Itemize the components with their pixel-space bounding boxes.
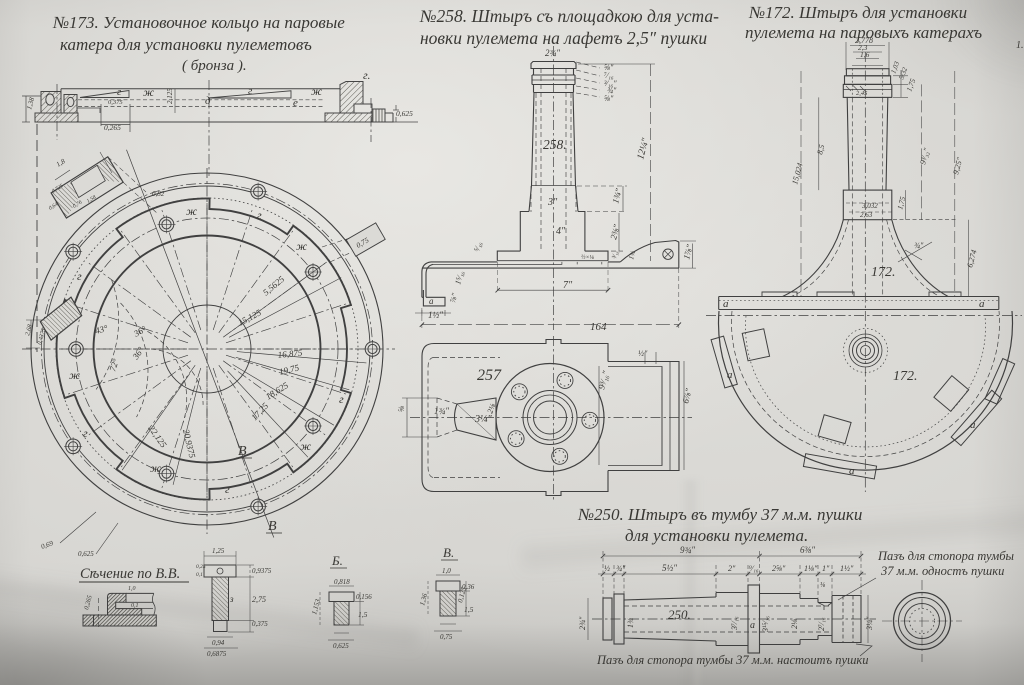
svg-text:ж: ж	[150, 461, 161, 475]
svg-text:½″: ½″	[638, 349, 648, 358]
svg-text:0,94: 0,94	[212, 639, 225, 647]
svg-text:1,5: 1,5	[358, 610, 368, 619]
svg-text:2,75: 2,75	[252, 595, 266, 604]
svg-text:г: г	[248, 85, 253, 97]
svg-text:( бронза ).: ( бронза ).	[182, 58, 247, 74]
svg-text:0,9375: 0,9375	[252, 567, 272, 575]
svg-text:0,4375: 0,4375	[36, 328, 47, 346]
svg-text:36°: 36°	[130, 345, 146, 362]
svg-text:43°: 43°	[94, 323, 109, 336]
svg-text:0,625: 0,625	[78, 550, 94, 558]
svg-text:⅝: ⅝	[397, 406, 406, 412]
svg-text:7″: 7″	[563, 280, 573, 291]
svg-text:№258. Штыръ съ площадкою для у: №258. Штыръ съ площадкою для уста-	[419, 6, 719, 26]
svg-text:1,153: 1,153	[310, 598, 322, 616]
svg-text:1.: 1.	[1016, 40, 1024, 51]
svg-text:6,274: 6,274	[965, 249, 978, 269]
svg-text:3⁷⁄₁₆: 3⁷⁄₁₆	[730, 616, 739, 631]
svg-text:№250. Штыръ въ тумбу 37 м.м. п: №250. Штыръ въ тумбу 37 м.м. пушки	[577, 505, 862, 524]
svg-text:2⅜″: 2⅜″	[608, 223, 622, 240]
svg-text:½: ½	[604, 564, 610, 573]
svg-text:ж: ж	[186, 204, 197, 218]
svg-text:16,875: 16,875	[277, 347, 303, 360]
svg-text:2,125: 2,125	[166, 88, 174, 104]
svg-text:½×⅛: ½×⅛	[581, 254, 595, 261]
svg-text:9,25″: 9,25″	[951, 156, 964, 176]
svg-text:а: а	[970, 419, 976, 431]
svg-text:ж: ж	[300, 439, 311, 453]
svg-text:а: а	[429, 296, 434, 306]
svg-text:¾″: ¾″	[914, 241, 924, 250]
svg-text:4″: 4″	[556, 226, 566, 237]
svg-text:5½″: 5½″	[662, 563, 677, 573]
svg-text:⅛: ⅛	[820, 581, 826, 589]
svg-text:ж: ж	[296, 239, 307, 253]
svg-text:1,8: 1,8	[55, 157, 67, 169]
svg-text:250.: 250.	[668, 607, 691, 622]
svg-text:для установки пулемета.: для установки пулемета.	[625, 526, 808, 545]
svg-text:1,0: 1,0	[442, 567, 451, 575]
svg-text:0,375: 0,375	[252, 620, 268, 628]
svg-text:1¾: 1¾	[626, 618, 635, 628]
svg-text:36°: 36°	[131, 324, 148, 340]
svg-text:0,25: 0,25	[196, 564, 206, 570]
svg-text:ж: ж	[69, 368, 80, 382]
svg-text:15,024: 15,024	[790, 162, 804, 186]
svg-text:е: е	[293, 97, 298, 109]
svg-text:172.: 172.	[871, 265, 896, 280]
svg-text:1¾″: 1¾″	[610, 187, 624, 204]
svg-text:0,75: 0,75	[440, 633, 453, 641]
svg-text:новки пулемета на лафетъ 2,5″: новки пулемета на лафетъ 2,5″ пушки	[420, 28, 707, 48]
svg-text:1,0: 1,0	[128, 586, 136, 592]
svg-text:В: В	[268, 519, 277, 534]
svg-text:172.: 172.	[893, 369, 918, 384]
svg-text:3¼″: 3¼″	[865, 616, 874, 631]
svg-text:257: 257	[477, 367, 502, 384]
svg-text:1⁵⁄₁₆: 1⁵⁄₁₆	[453, 270, 465, 286]
svg-text:2⅛: 2⅛	[790, 619, 799, 629]
svg-text:0,6875: 0,6875	[207, 650, 227, 658]
svg-text:2,63: 2,63	[860, 211, 873, 219]
svg-text:г.: г.	[363, 68, 371, 82]
svg-text:⅞″: ⅞″	[448, 292, 459, 304]
svg-text:г: г	[225, 482, 230, 496]
svg-text:0,1: 0,1	[131, 603, 139, 609]
svg-text:ж: ж	[311, 84, 322, 98]
svg-text:а: а	[979, 298, 985, 310]
svg-text:17,25: 17,25	[249, 400, 270, 422]
svg-text:³⁄₁₆: ³⁄₁₆	[610, 249, 620, 259]
svg-text:0,265: 0,265	[83, 594, 94, 611]
svg-text:а: а	[727, 369, 733, 381]
svg-text:2,45: 2,45	[856, 90, 868, 97]
svg-text:г: г	[257, 208, 262, 222]
svg-text:1,6: 1,6	[860, 50, 870, 59]
svg-text:2¾″: 2¾″	[545, 48, 560, 58]
svg-text:1″: 1″	[822, 564, 830, 573]
svg-text:№172. Штыръ для установки: №172. Штыръ для установки	[748, 3, 967, 22]
svg-text:Пазъ для стопора тумбы: Пазъ для стопора тумбы	[877, 549, 1014, 563]
svg-text:1½″: 1½″	[840, 564, 854, 573]
svg-text:0,625: 0,625	[333, 642, 349, 650]
svg-text:37 м.м. одностъ пушки: 37 м.м. одностъ пушки	[880, 564, 1004, 578]
svg-text:0,1: 0,1	[196, 572, 203, 578]
svg-text:9³⁄₁₆″: 9³⁄₁₆″	[596, 370, 611, 391]
svg-text:г: г	[339, 392, 344, 406]
svg-text:3,032: 3,032	[861, 202, 878, 210]
svg-text:1¾″: 1¾″	[434, 406, 449, 416]
svg-text:0,125: 0,125	[456, 586, 468, 604]
svg-text:В.: В.	[443, 545, 454, 560]
svg-text:0,82: 0,82	[152, 190, 165, 198]
svg-text:Пазъ для стопора тумбы 37 м.м.: Пазъ для стопора тумбы 37 м.м. настоитъ …	[596, 653, 869, 667]
svg-text:1,36: 1,36	[418, 592, 429, 606]
svg-text:1,5: 1,5	[464, 605, 474, 614]
svg-text:6⅞″: 6⅞″	[680, 387, 694, 404]
svg-text:Б.: Б.	[331, 553, 343, 568]
svg-text:258.: 258.	[543, 137, 567, 152]
svg-text:0,156: 0,156	[356, 593, 372, 601]
svg-text:г: г	[117, 86, 122, 98]
svg-text:2⅝″: 2⅝″	[772, 564, 786, 573]
svg-text:1½″: 1½″	[428, 310, 443, 320]
svg-text:з: з	[229, 594, 234, 604]
svg-text:6⅜″: 6⅜″	[800, 545, 815, 555]
svg-text:а: а	[723, 298, 729, 310]
svg-text:г: г	[83, 426, 88, 440]
svg-text:164: 164	[590, 321, 607, 333]
svg-text:3¹⁵⁄₁₆: 3¹⁵⁄₁₆	[761, 616, 770, 633]
svg-text:2¾″: 2¾″	[578, 616, 587, 630]
svg-text:9³⁄₃₂″: 9³⁄₃₂″	[918, 146, 931, 165]
svg-text:1,38: 1,38	[25, 96, 36, 110]
svg-text:г: г	[77, 269, 82, 283]
svg-text:0,375: 0,375	[108, 99, 123, 106]
svg-text:0,69: 0,69	[40, 539, 55, 551]
svg-text:⅝″: ⅝″	[604, 94, 614, 103]
svg-text:12¼″: 12¼″	[635, 136, 651, 161]
svg-text:1⅛″: 1⅛″	[804, 564, 818, 573]
svg-text:3″: 3″	[547, 197, 558, 208]
svg-text:а: а	[849, 465, 855, 477]
svg-text:8,5: 8,5	[815, 144, 826, 156]
svg-text:22,125: 22,125	[146, 423, 169, 449]
svg-text:1,25: 1,25	[212, 547, 225, 555]
svg-text:Сѣчение по В.В.: Сѣчение по В.В.	[80, 566, 180, 582]
svg-text:⁵⁄₁₆: ⁵⁄₁₆	[472, 241, 483, 253]
svg-text:2⁷⁄₁₆: 2⁷⁄₁₆	[817, 617, 826, 631]
svg-text:№173. Установочное кольцо на п: №173. Установочное кольцо на паровые	[52, 13, 345, 32]
svg-text:0,818: 0,818	[334, 578, 350, 586]
svg-text:ж: ж	[143, 85, 154, 99]
svg-text:катера для установки пулеметов: катера для установки пулеметовъ	[60, 35, 312, 54]
svg-text:2″: 2″	[728, 564, 736, 573]
svg-text:3¼″: 3¼″	[474, 414, 493, 425]
svg-text:д: д	[205, 95, 211, 107]
svg-text:72°: 72°	[107, 357, 121, 372]
svg-text:а: а	[750, 620, 755, 631]
svg-text:¾″: ¾″	[616, 564, 626, 573]
svg-text:9¾″: 9¾″	[680, 545, 695, 555]
svg-text:⁹⁄₁₆: ⁹⁄₁₆	[749, 564, 759, 573]
svg-text:В: В	[238, 444, 247, 459]
svg-text:1,75: 1,75	[904, 77, 917, 93]
